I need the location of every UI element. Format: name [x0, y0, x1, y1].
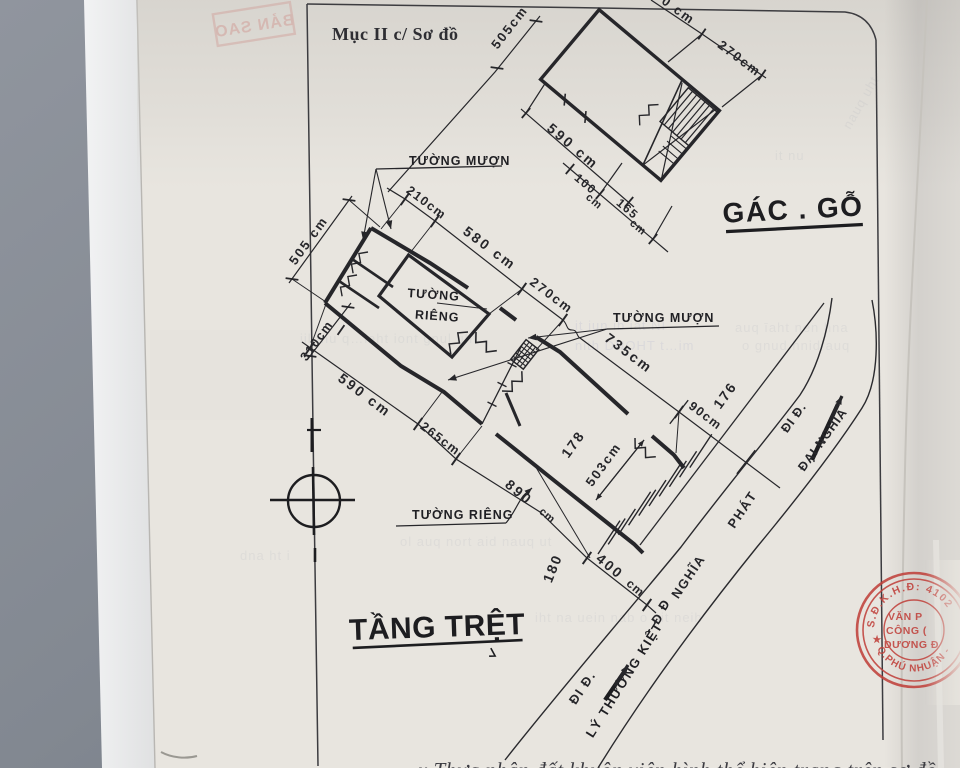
svg-text:RIÊNG: RIÊNG	[414, 307, 460, 325]
svg-text:TƯỜNG RIÊNG: TƯỜNG RIÊNG	[412, 507, 513, 522]
svg-text:ol auq nort aid nauq ut: ol auq nort aid nauq ut	[400, 534, 552, 549]
svg-text:iht na uein nab o nit neih: iht na uein nab o nit neih	[535, 610, 703, 625]
svg-text:dna ht i: dna ht i	[240, 548, 291, 563]
svg-text:CÔNG (: CÔNG (	[886, 624, 927, 637]
svg-text:VĂN P: VĂN P	[888, 610, 923, 623]
svg-text:auq īaht nen hna: auq īaht nen hna	[735, 320, 849, 335]
svg-text:Mục II c/ Sơ đồ: Mục II c/ Sơ đồ	[332, 24, 458, 44]
svg-text:TƯỜNG MƯỢN: TƯỜNG MƯỢN	[613, 310, 714, 325]
svg-text:it nu: it nu	[775, 148, 805, 163]
svg-text:x Thưa nhận đất khuôn viên hìn: x Thưa nhận đất khuôn viên hình thể hiện…	[417, 758, 937, 768]
